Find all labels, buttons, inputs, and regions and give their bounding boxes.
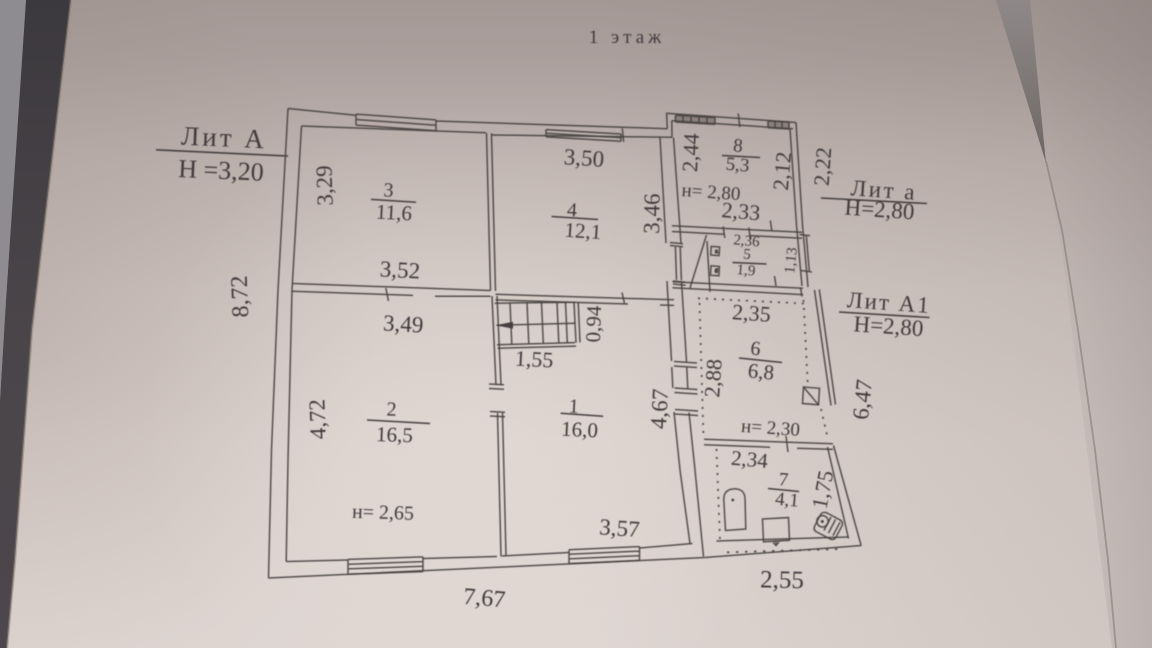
svg-text:6: 6 — [750, 338, 762, 361]
svg-text:2,55: 2,55 — [760, 566, 804, 594]
svg-text:2,34: 2,34 — [730, 446, 769, 473]
svg-text:Н=2,80: Н=2,80 — [853, 311, 924, 341]
svg-text:Н =3,20: Н =3,20 — [178, 154, 265, 187]
svg-text:11,6: 11,6 — [375, 200, 412, 226]
svg-text:3,29: 3,29 — [311, 165, 337, 206]
svg-text:12,1: 12,1 — [564, 218, 602, 245]
svg-text:3,52: 3,52 — [379, 256, 421, 283]
svg-text:Лит А: Лит А — [180, 121, 267, 155]
svg-text:1 этаж: 1 этаж — [589, 27, 666, 48]
svg-text:3,46: 3,46 — [639, 193, 665, 234]
svg-text:2,35: 2,35 — [731, 299, 771, 327]
svg-text:16,0: 16,0 — [561, 417, 599, 443]
svg-text:7: 7 — [778, 469, 789, 491]
svg-text:4,1: 4,1 — [774, 489, 799, 512]
svg-text:2,12: 2,12 — [768, 151, 796, 192]
svg-text:4,72: 4,72 — [304, 399, 330, 440]
svg-text:2,88: 2,88 — [699, 358, 727, 398]
svg-text:1,13: 1,13 — [782, 247, 801, 275]
svg-text:0,94: 0,94 — [581, 305, 606, 343]
svg-text:3,49: 3,49 — [383, 310, 425, 337]
svg-text:6,8: 6,8 — [747, 359, 775, 385]
svg-text:2,44: 2,44 — [677, 133, 704, 173]
svg-text:н= 2,65: н= 2,65 — [352, 501, 415, 525]
svg-text:5,3: 5,3 — [725, 154, 750, 177]
svg-text:2: 2 — [386, 399, 397, 421]
svg-text:1,9: 1,9 — [736, 262, 756, 280]
svg-text:16,5: 16,5 — [376, 422, 414, 447]
svg-text:Н=2,80: Н=2,80 — [844, 195, 915, 225]
svg-text:2,22: 2,22 — [809, 146, 837, 186]
svg-text:3,50: 3,50 — [563, 144, 605, 172]
svg-text:4,67: 4,67 — [646, 388, 673, 430]
svg-text:8,72: 8,72 — [227, 275, 254, 318]
svg-text:7,67: 7,67 — [462, 584, 506, 614]
svg-text:3: 3 — [383, 179, 394, 201]
svg-text:2,33: 2,33 — [721, 197, 762, 225]
svg-text:6,47: 6,47 — [848, 378, 877, 421]
svg-text:3,57: 3,57 — [599, 514, 641, 542]
svg-text:1,55: 1,55 — [514, 346, 554, 373]
svg-text:н= 2,30: н= 2,30 — [740, 416, 800, 441]
svg-text:5: 5 — [743, 247, 752, 264]
